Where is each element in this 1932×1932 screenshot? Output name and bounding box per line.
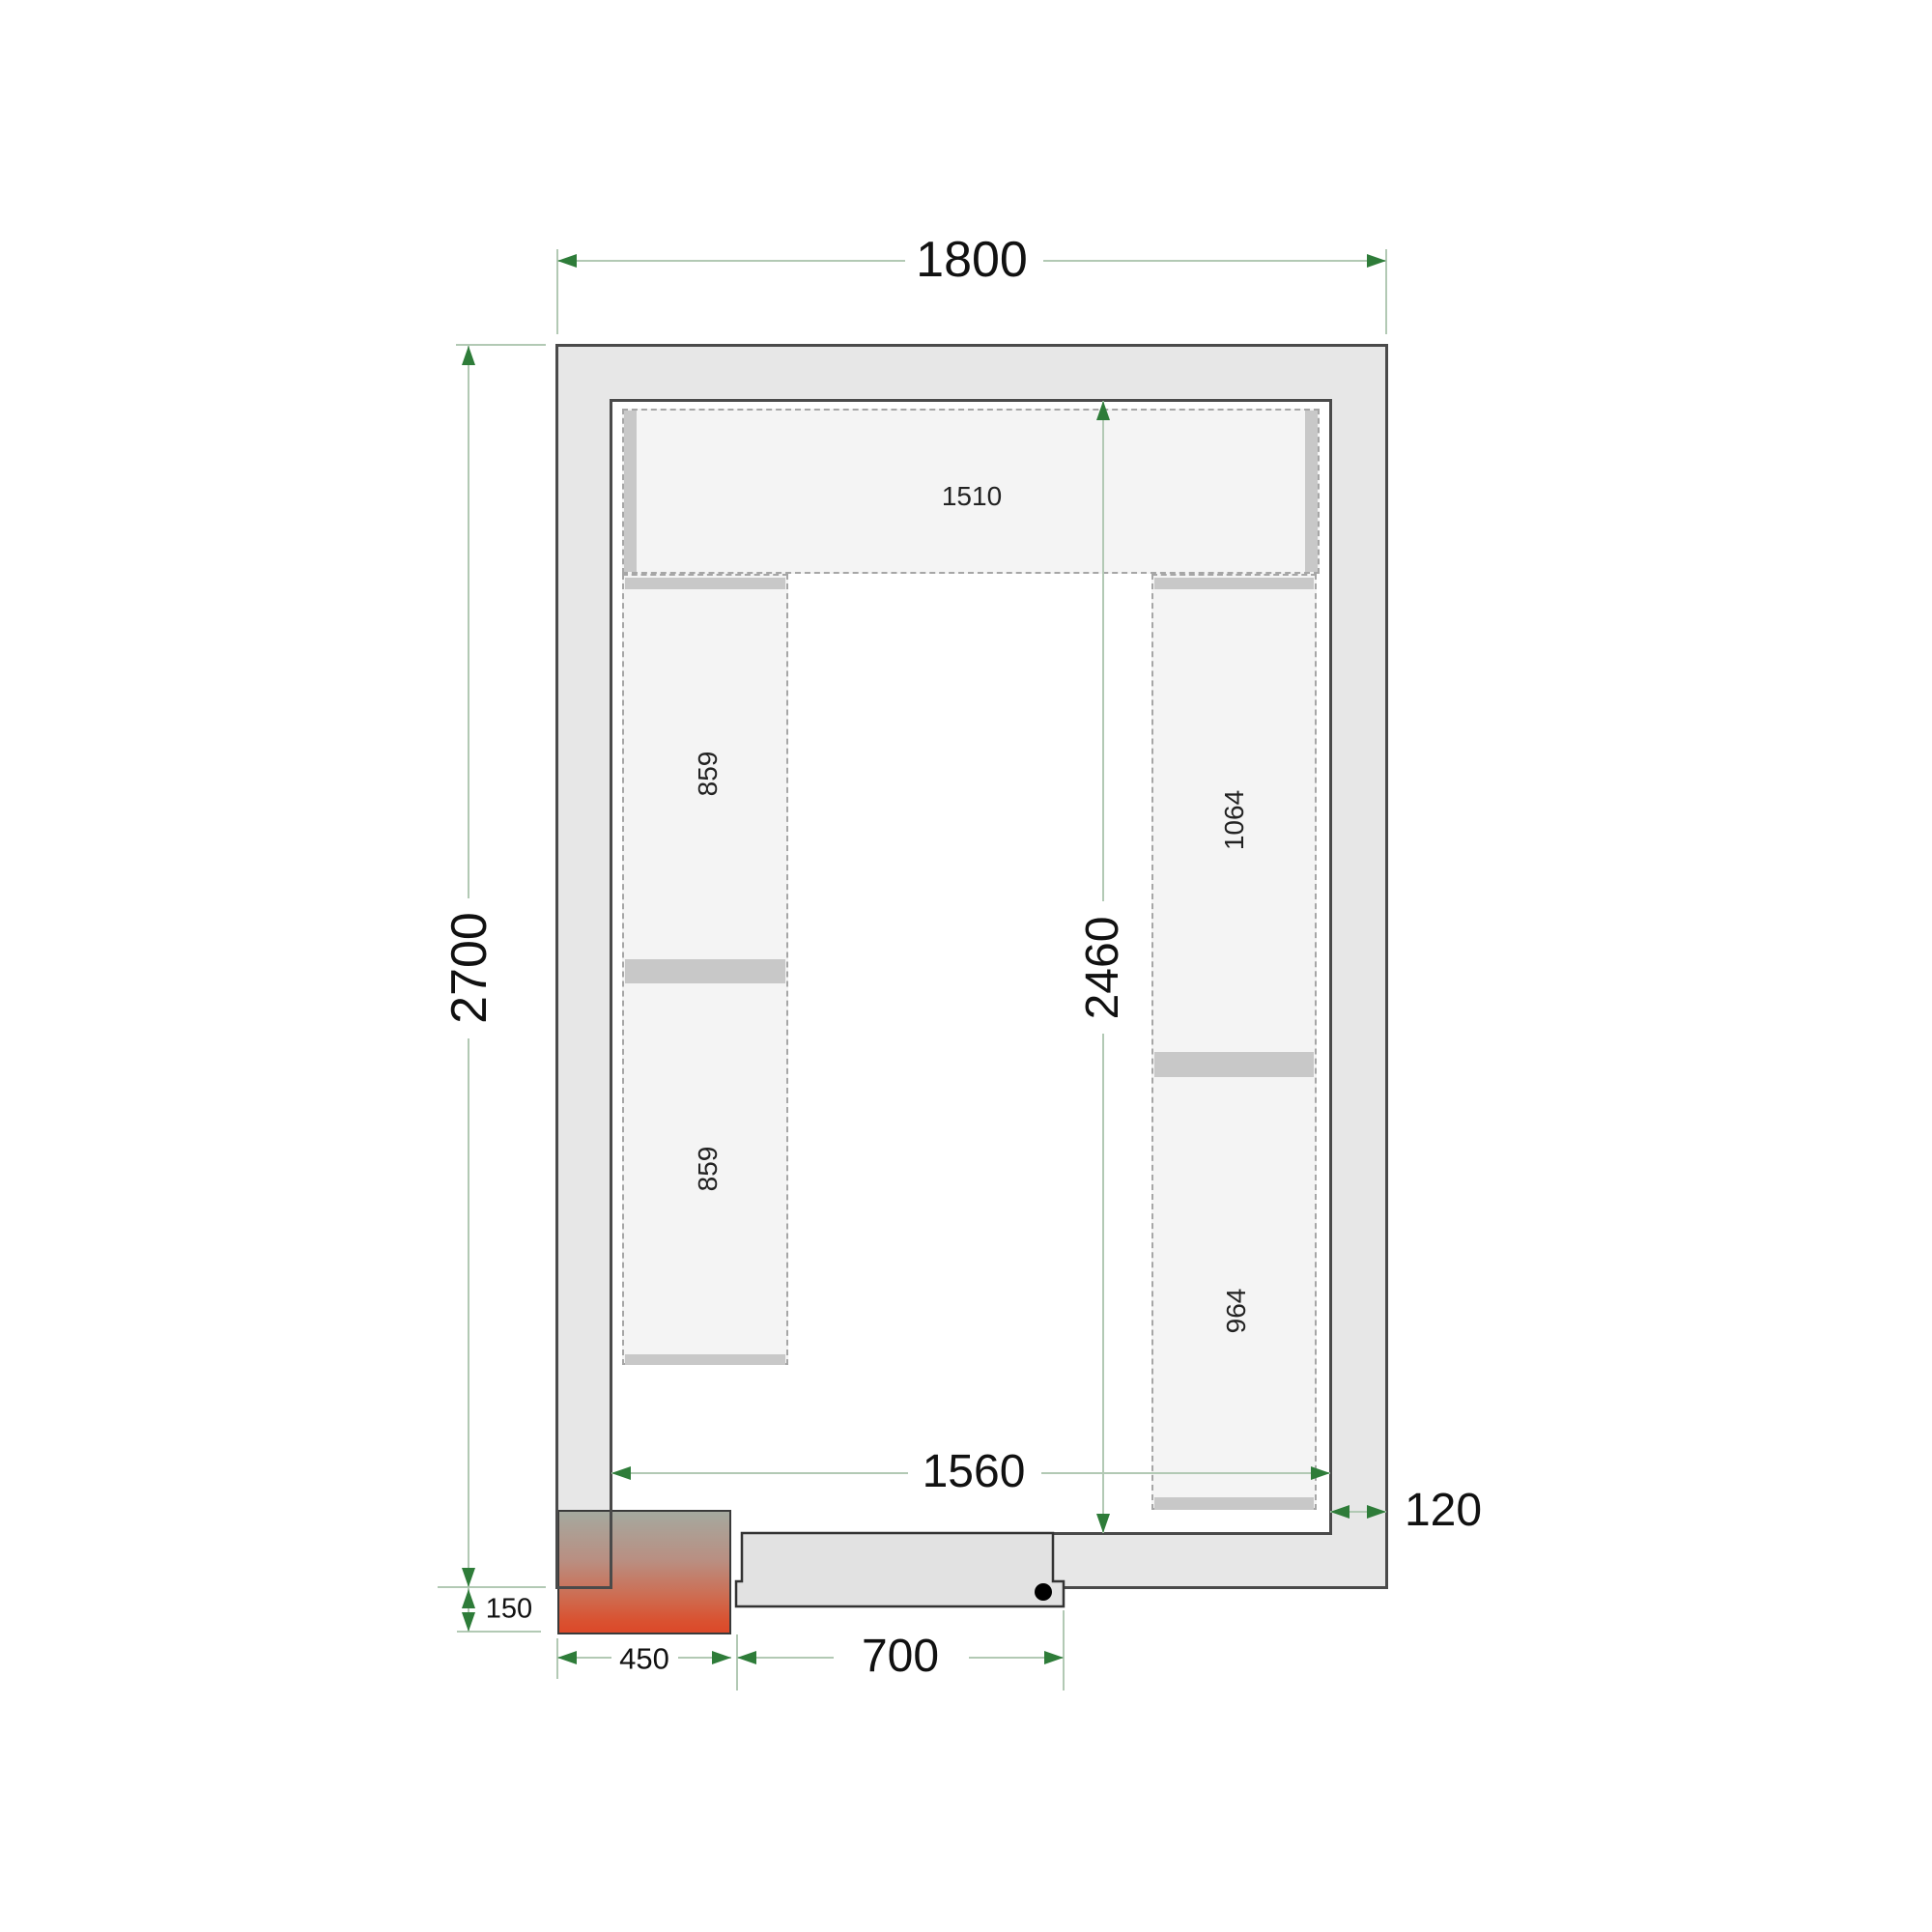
shelf-label-right-upper: 1064 xyxy=(1221,790,1248,850)
wall-edge-line xyxy=(555,1510,558,1589)
arrow-right-icon xyxy=(1367,254,1386,268)
arrow-left-icon xyxy=(611,1466,631,1480)
dim-inner-width: 1560 xyxy=(923,1449,1026,1495)
dim-line xyxy=(611,1472,908,1474)
arrow-down-icon xyxy=(462,1612,475,1632)
door-hinge-dot xyxy=(1035,1583,1052,1601)
shelf-label-right-lower: 964 xyxy=(1223,1289,1250,1334)
dim-line xyxy=(468,1038,469,1587)
arrow-up-icon xyxy=(462,1589,475,1608)
shelf-label-left-upper: 859 xyxy=(695,752,722,797)
dim-unit-width: 450 xyxy=(619,1644,669,1674)
condensing-unit xyxy=(557,1510,731,1634)
shelf-label-top: 1510 xyxy=(942,483,1002,510)
shelf-divider xyxy=(625,959,785,983)
shelf-bracket-top xyxy=(625,578,785,589)
wall-edge-line xyxy=(610,1510,612,1589)
dim-inner-height: 2460 xyxy=(1080,917,1126,1020)
shelf-column-left xyxy=(622,574,788,1365)
wall-edge-line xyxy=(555,1586,612,1589)
dim-line xyxy=(1102,401,1104,901)
arrow-left-icon xyxy=(557,1651,577,1664)
dim-wall-thickness: 120 xyxy=(1405,1488,1482,1534)
arrow-right-icon xyxy=(1367,1505,1386,1519)
arrow-up-icon xyxy=(1096,401,1110,420)
extension-line xyxy=(438,1586,546,1588)
dim-door-width: 700 xyxy=(862,1634,939,1680)
shelf-bracket-top xyxy=(1154,578,1314,589)
dim-line xyxy=(1041,1472,1330,1474)
arrow-up-icon xyxy=(462,346,475,365)
arrow-right-icon xyxy=(1044,1651,1064,1664)
shelf-column-right xyxy=(1151,574,1317,1510)
arrow-down-icon xyxy=(1096,1514,1110,1533)
arrow-left-icon xyxy=(1330,1505,1350,1519)
arrow-right-icon xyxy=(1311,1466,1330,1480)
arrow-left-icon xyxy=(557,254,577,268)
shelf-bracket-bottom xyxy=(625,1354,785,1365)
dim-line xyxy=(557,260,905,262)
arrow-down-icon xyxy=(462,1568,475,1587)
dim-unit-offset: 150 xyxy=(486,1596,532,1624)
dim-overall-width: 1800 xyxy=(916,235,1028,285)
shelf-divider xyxy=(1154,1052,1314,1077)
door-panel xyxy=(729,1526,1072,1615)
shelf-bracket-right xyxy=(1305,411,1318,572)
arrow-right-icon xyxy=(712,1651,731,1664)
shelf-bracket-left xyxy=(624,411,637,572)
floor-plan: 1510 859 859 1064 964 1800 2700 1560 246… xyxy=(0,0,1932,1932)
arrow-left-icon xyxy=(737,1651,756,1664)
dim-line xyxy=(1102,1034,1104,1533)
shelf-bracket-bottom xyxy=(1154,1497,1314,1510)
dim-overall-height: 2700 xyxy=(444,912,495,1024)
dim-line xyxy=(1043,260,1386,262)
shelf-label-left-lower: 859 xyxy=(695,1147,722,1192)
door-leaf xyxy=(736,1533,1064,1606)
dim-line xyxy=(468,346,469,898)
